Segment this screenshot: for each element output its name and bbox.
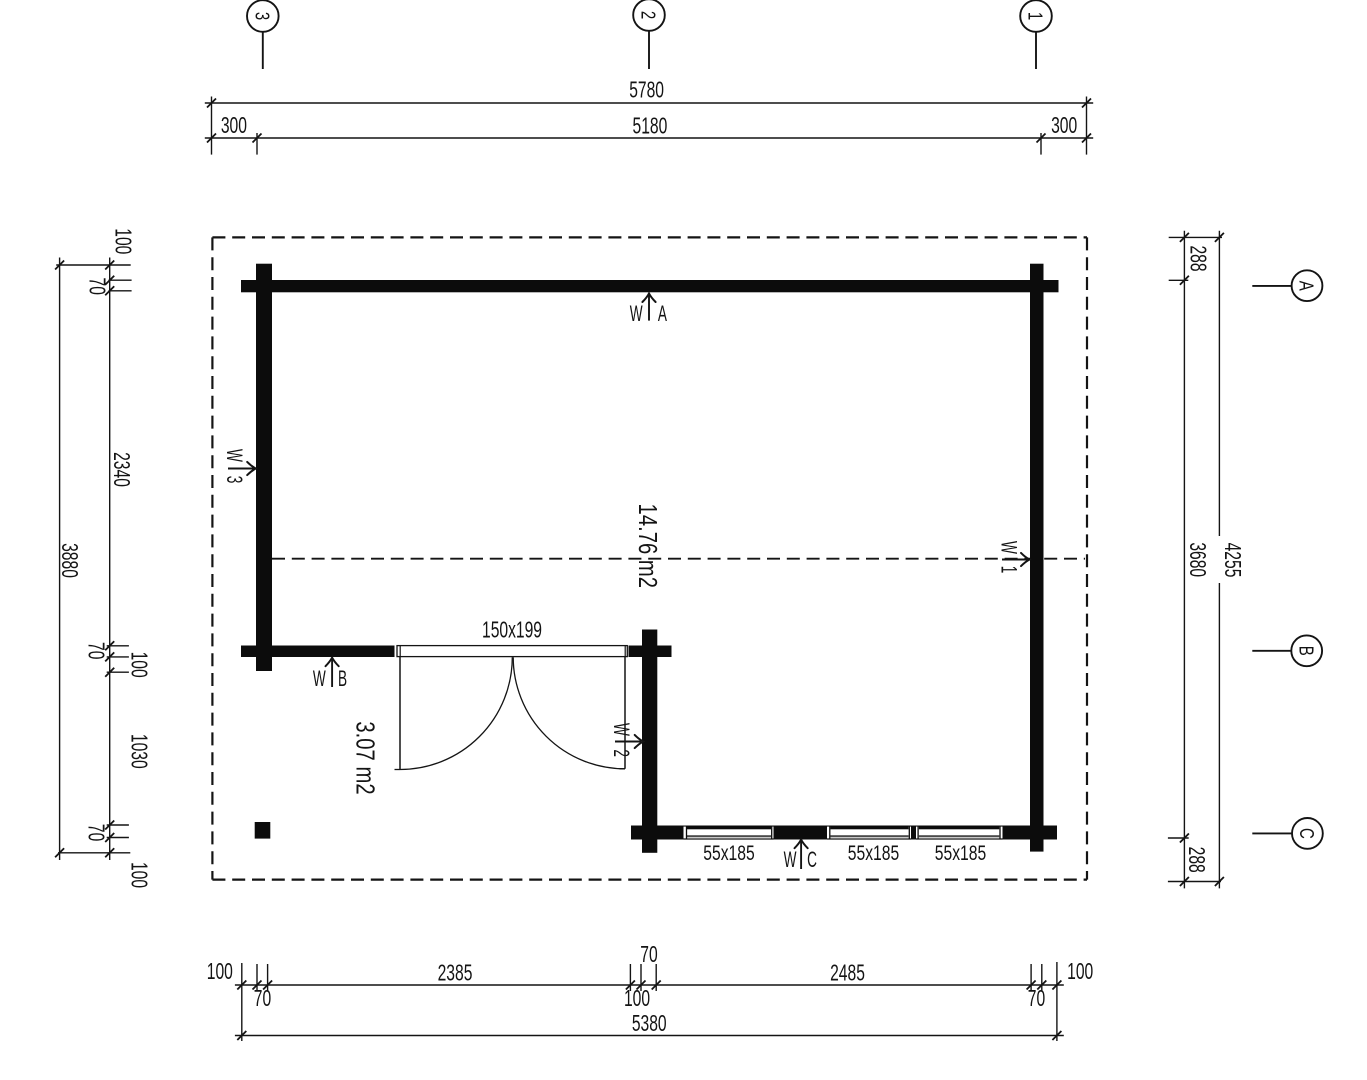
svg-text:1030: 1030: [126, 734, 152, 769]
svg-text:288: 288: [1185, 245, 1211, 271]
svg-text:C: C: [1295, 828, 1318, 839]
svg-text:300: 300: [1051, 113, 1077, 139]
svg-text:70: 70: [83, 824, 109, 841]
svg-text:W: W: [784, 847, 797, 872]
svg-text:70: 70: [1028, 986, 1045, 1012]
svg-text:2485: 2485: [830, 961, 865, 987]
svg-text:100: 100: [126, 862, 152, 888]
svg-text:55x185: 55x185: [703, 841, 754, 865]
svg-text:2: 2: [609, 749, 634, 757]
svg-text:2385: 2385: [438, 961, 473, 987]
svg-text:100: 100: [109, 228, 135, 254]
svg-text:100: 100: [207, 959, 233, 985]
svg-text:2: 2: [637, 11, 660, 19]
svg-text:100: 100: [1067, 959, 1093, 985]
svg-text:300: 300: [221, 113, 247, 139]
svg-text:70: 70: [254, 986, 271, 1012]
svg-text:1: 1: [1024, 12, 1047, 20]
svg-text:B: B: [1295, 646, 1318, 656]
svg-text:55x185: 55x185: [935, 841, 986, 865]
svg-text:4255: 4255: [1219, 543, 1245, 578]
svg-text:288: 288: [1183, 847, 1209, 873]
svg-text:5380: 5380: [632, 1011, 667, 1037]
svg-text:3680: 3680: [1184, 542, 1210, 577]
svg-text:100: 100: [126, 652, 152, 678]
svg-text:1: 1: [997, 566, 1022, 574]
svg-text:W: W: [313, 666, 326, 691]
svg-text:A: A: [1295, 281, 1318, 291]
svg-text:2340: 2340: [108, 452, 134, 487]
svg-text:W: W: [609, 723, 634, 736]
svg-text:3: 3: [251, 12, 274, 20]
svg-text:B: B: [338, 666, 347, 691]
svg-text:W: W: [222, 449, 247, 462]
svg-text:70: 70: [83, 642, 109, 659]
svg-text:W: W: [630, 301, 643, 326]
svg-text:3: 3: [222, 476, 247, 484]
svg-text:55x185: 55x185: [848, 841, 899, 865]
svg-text:5180: 5180: [633, 114, 668, 140]
svg-text:3.07 m2: 3.07 m2: [351, 721, 380, 794]
svg-text:3880: 3880: [56, 543, 82, 578]
svg-text:100: 100: [624, 986, 650, 1012]
svg-text:150x199: 150x199: [482, 618, 542, 644]
svg-text:C: C: [807, 847, 817, 872]
svg-text:70: 70: [640, 942, 657, 968]
svg-text:70: 70: [83, 278, 109, 295]
svg-text:W: W: [997, 541, 1022, 554]
svg-text:5780: 5780: [629, 78, 664, 104]
svg-text:14.76 m2: 14.76 m2: [634, 504, 663, 588]
svg-text:A: A: [658, 301, 668, 326]
